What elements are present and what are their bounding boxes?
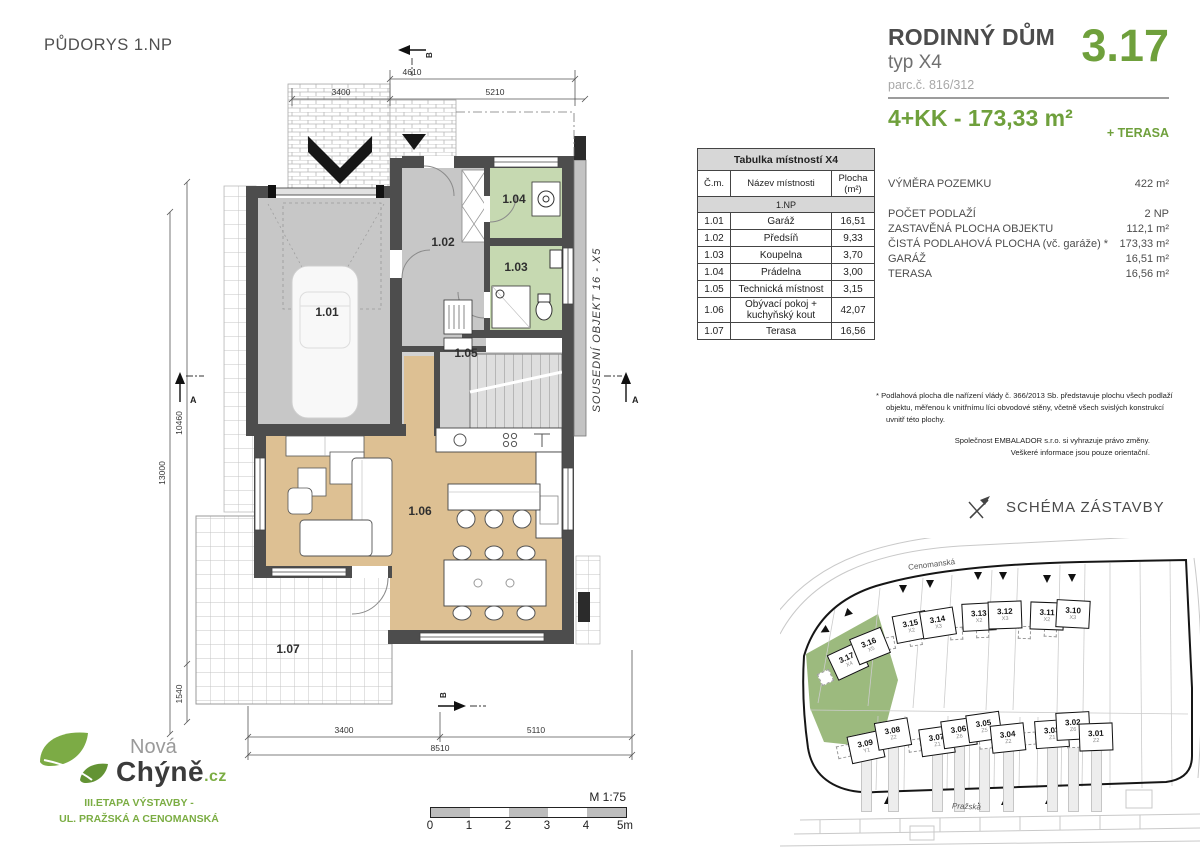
schema-background [780, 538, 1200, 848]
schema-header: SCHÉMA ZÁSTAVBY [964, 492, 1165, 522]
direction-arrow-icon [999, 572, 1007, 580]
street-bottom-label: Pražská [952, 801, 981, 811]
scale-tick: 3 [544, 820, 550, 832]
detail-row: TERASA16,56 m² [888, 268, 1169, 280]
header-divider [888, 97, 1169, 99]
room-label-105: 1.05 [454, 346, 478, 360]
dim-left-total: 13000 [157, 461, 167, 485]
logo-suffix: .cz [204, 768, 227, 785]
scale-bar-segments [430, 807, 627, 818]
company-note-1: Společnost EMBALADOR s.r.o. si vyhrazuje… [876, 435, 1150, 447]
dim-bottom-left: 3400 [335, 725, 354, 735]
direction-arrow-icon [1068, 574, 1076, 582]
dim-left-main: 10460 [174, 411, 184, 435]
room-table: Tabulka místností X4 Č.m. Název místnost… [697, 148, 875, 340]
neighbor-object-label: SOUSEDNÍ OBJEKT 16 - X5 [590, 248, 603, 413]
room-label-107: 1.07 [276, 642, 300, 656]
etapa-label: III.ETAPA VÝSTAVBY - UL. PRAŽSKÁ A CENOM… [34, 796, 244, 828]
schema-plot-3.14: 3.14X3 [919, 607, 957, 640]
driveway [888, 746, 899, 812]
dim-top-right: 5210 [486, 87, 505, 97]
room-label-104: 1.04 [502, 192, 526, 206]
table-row: 1.01Garáž16,51 [698, 213, 875, 230]
driveway [1068, 738, 1079, 812]
stairs [470, 354, 562, 428]
table-row: 1.03Koupelna3,70 [698, 247, 875, 264]
north-arrow-icon [964, 492, 994, 522]
schema-plot-3.08: 3.08Z2 [874, 717, 912, 750]
direction-arrow-icon [974, 572, 982, 580]
driveway [979, 739, 990, 812]
col-header-num: Č.m. [698, 171, 731, 197]
kitchen-counter [436, 428, 562, 452]
scale-tick: 5m [617, 820, 633, 832]
scale-tick: 0 [427, 820, 433, 832]
table-row: 1.05Technická místnost3,15 [698, 281, 875, 298]
marker-b-bottom: B [439, 692, 448, 698]
direction-arrow-icon [819, 625, 830, 636]
schema-plot-3.10: 3.10X3 [1055, 599, 1090, 629]
driveway [1003, 750, 1014, 812]
scale-tick: 2 [505, 820, 511, 832]
property-details: VÝMĚRA POZEMKU422 m²POČET PODLAŽÍ2 NPZAS… [888, 178, 1169, 283]
logo-name-main: Chýně.cz [116, 756, 227, 788]
driveway [1091, 749, 1102, 812]
dim-top-left: 3400 [332, 87, 351, 97]
direction-arrow-icon [1043, 575, 1051, 583]
toilet [536, 300, 552, 320]
scale-label: M 1:75 [589, 790, 626, 804]
driveway [1047, 746, 1058, 812]
direction-arrow-icon [899, 585, 907, 593]
schema-plot-3.01: 3.01Z2 [1079, 722, 1114, 751]
sink [550, 250, 562, 268]
washing-machine [532, 182, 560, 216]
schema-plot-3.04: 3.04Z2 [990, 722, 1027, 753]
footnotes: * Podlahová plocha dle nařízení vlády č.… [876, 390, 1176, 459]
schema-title: SCHÉMA ZÁSTAVBY [1006, 499, 1165, 516]
asterisk-note: * Podlahová plocha dle nařízení vlády č.… [876, 390, 1176, 425]
direction-arrow-icon [926, 580, 934, 588]
room-label-106: 1.06 [408, 504, 432, 518]
detail-row: GARÁŽ16,51 m² [888, 253, 1169, 265]
detail-row: ZASTAVĚNÁ PLOCHA OBJEKTU112,1 m² [888, 223, 1169, 235]
company-note-2: Veškeré informace jsou pouze orientační. [876, 447, 1150, 459]
room-table-section: 1.NP [698, 197, 875, 213]
logo: Nová Chýně.cz III.ETAPA VÝSTAVBY - UL. P… [34, 728, 264, 797]
table-row: 1.02Předsíň9,33 [698, 230, 875, 247]
direction-arrow-icon [842, 608, 853, 619]
detail-row: ČISTÁ PODLAHOVÁ PLOCHA (vč. garáže) *173… [888, 238, 1169, 250]
unit-number: 3.17 [1081, 20, 1169, 72]
scale-tick: 1 [466, 820, 472, 832]
wardrobe [462, 170, 486, 242]
marker-b-top: B [425, 52, 434, 58]
driveway [861, 759, 872, 812]
room-label-102: 1.02 [431, 235, 455, 249]
detail-row: VÝMĚRA POZEMKU422 m² [888, 178, 1169, 190]
room-label-101: 1.01 [315, 305, 339, 319]
dim-bottom-total: 8510 [431, 743, 450, 753]
schema-map: Cenomanská Pražská 3.17X43.16X53.15X23.1… [780, 538, 1200, 848]
room-label-103: 1.03 [504, 260, 528, 274]
marker-a-right: A [632, 395, 639, 405]
terrace-suffix: + TERASA [1107, 126, 1169, 140]
table-row: 1.04Prádelna3,00 [698, 264, 875, 281]
room-table-title: Tabulka místností X4 [698, 149, 875, 171]
boiler [444, 300, 472, 334]
schema-plot-3.12: 3.12X3 [988, 600, 1023, 629]
col-header-area: Plocha(m²) [832, 171, 875, 197]
sheet-header: RODINNÝ DŮM 3.17 typ X4 parc.č. 816/312 … [888, 24, 1169, 132]
table-row: 1.07Terasa16,56 [698, 323, 875, 340]
scale-tick: 4 [583, 820, 589, 832]
driveway [932, 753, 943, 812]
scale-bar: M 1:75 012345m [430, 790, 626, 836]
dining-table [444, 560, 546, 606]
room-table-body: 1.01Garáž16,511.02Předsíň9,331.03Koupeln… [698, 213, 875, 340]
dim-left-low: 1540 [174, 684, 184, 703]
table-row: 1.06Obývací pokoj + kuchyňský kout42,07 [698, 298, 875, 323]
dim-bottom-right: 5110 [527, 725, 546, 735]
parcel-number: parc.č. 816/312 [888, 78, 1169, 92]
marker-a-left: A [190, 395, 197, 405]
floorplan-drawing: 1.01 1.02 1.03 1.04 1.05 1.06 1.07 SOUSE… [0, 0, 700, 848]
detail-row: POČET PODLAŽÍ2 NP [888, 208, 1169, 220]
col-header-name: Název místnosti [731, 171, 832, 197]
party-wall [574, 160, 586, 436]
kitchen-island [448, 484, 540, 510]
